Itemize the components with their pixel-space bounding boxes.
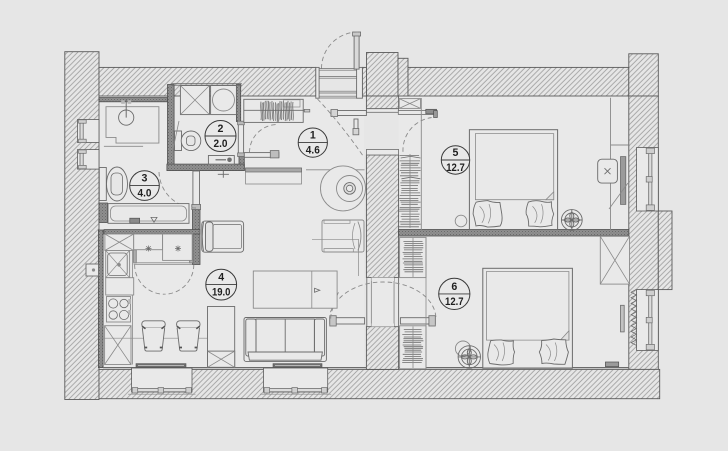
svg-text:2.0: 2.0 bbox=[214, 138, 228, 150]
svg-text:3: 3 bbox=[142, 173, 148, 185]
svg-text:2: 2 bbox=[218, 123, 224, 135]
svg-text:6: 6 bbox=[451, 281, 457, 293]
svg-text:19.0: 19.0 bbox=[212, 287, 231, 299]
svg-text:4.6: 4.6 bbox=[306, 145, 320, 157]
svg-text:1: 1 bbox=[310, 130, 316, 142]
svg-text:4.0: 4.0 bbox=[138, 188, 152, 200]
svg-text:5: 5 bbox=[453, 147, 459, 159]
svg-text:12.7: 12.7 bbox=[446, 162, 465, 174]
svg-text:12.7: 12.7 bbox=[445, 296, 464, 308]
svg-text:4: 4 bbox=[218, 272, 224, 284]
